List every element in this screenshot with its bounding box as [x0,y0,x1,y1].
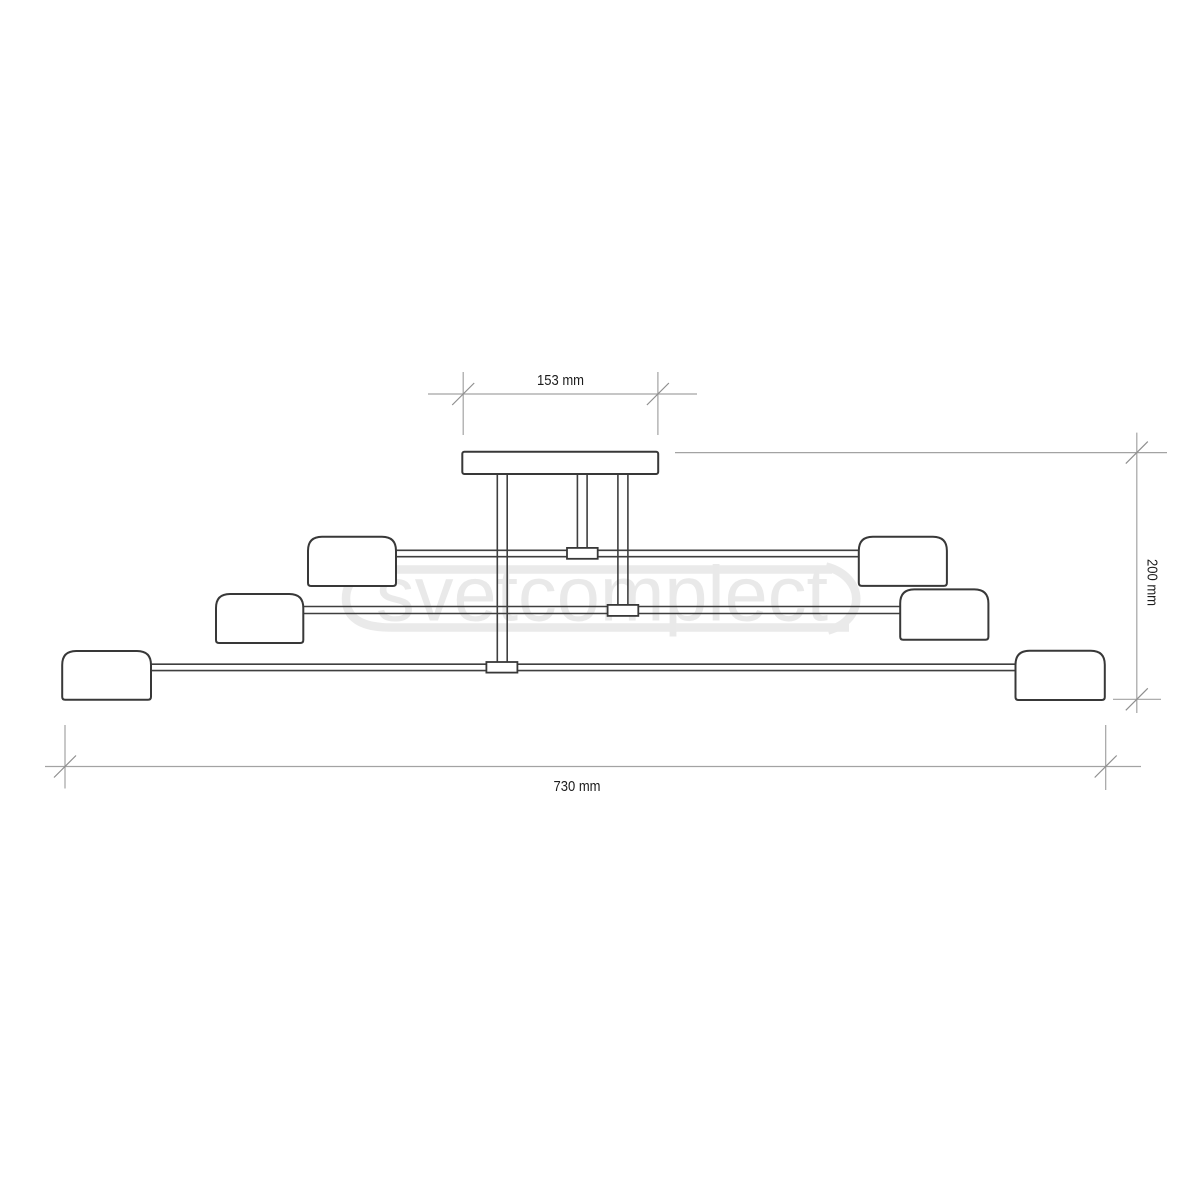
svg-text:730 mm: 730 mm [554,778,601,795]
svg-text:svetcomplect: svetcomplect [376,550,828,638]
svg-text:200 mm: 200 mm [1144,559,1161,606]
svg-text:153 mm: 153 mm [537,372,584,389]
